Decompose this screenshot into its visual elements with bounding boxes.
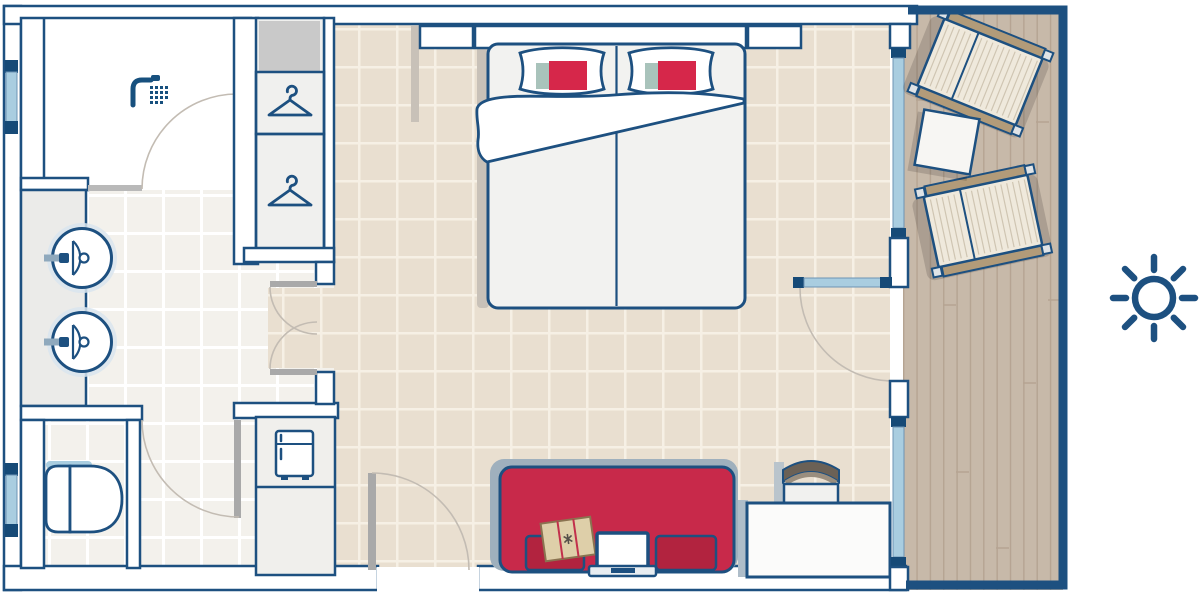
book-icon	[541, 517, 596, 562]
balcony-window-lower	[893, 427, 904, 557]
divider-pillar	[890, 567, 908, 590]
fridge-icon	[276, 431, 313, 480]
window-left-top	[5, 60, 18, 134]
pillow-accent-teal	[645, 63, 659, 89]
side-table	[907, 109, 979, 182]
wardrobe-wall-right	[324, 18, 334, 262]
wardrobe-wall-foot	[244, 248, 334, 262]
balcony-window-upper	[893, 58, 904, 228]
passage-pillar-top	[316, 262, 334, 284]
headboard-shadow	[411, 26, 419, 122]
shower-room	[21, 18, 251, 191]
floor-plan	[0, 0, 1200, 594]
toilet-room-wall-left	[21, 420, 44, 568]
divider-pillar	[890, 381, 908, 417]
desk	[747, 503, 890, 577]
swing-door-leaf-bottom	[270, 369, 317, 375]
passage-pillar-bottom	[316, 372, 334, 404]
toilet-icon	[46, 461, 122, 532]
interior-wall	[234, 18, 258, 264]
sofa-cushion	[656, 536, 716, 570]
window-left-bottom	[5, 463, 18, 537]
nightstand-left	[420, 26, 473, 48]
toilet-room-wall-top	[21, 406, 142, 420]
toilet-room-wall-right	[127, 420, 140, 568]
entrance-threshold	[377, 567, 479, 594]
pillow-accent-teal	[536, 63, 550, 89]
swing-door-leaf-top	[270, 281, 317, 287]
passage-floor	[268, 288, 334, 368]
divider-pillar	[890, 238, 908, 287]
laptop-icon	[589, 533, 656, 576]
balcony-door-leaf	[804, 278, 882, 287]
shower-door-threshold	[88, 185, 142, 191]
entrance-door-leaf	[368, 473, 376, 570]
floor-plan-canvas	[0, 0, 1200, 594]
nightstand-right	[748, 26, 801, 48]
wardrobe-shelf	[259, 21, 320, 71]
pillow-accent-red	[549, 61, 587, 90]
divider-pillar	[890, 24, 910, 48]
toilet-door-leaf	[234, 420, 241, 518]
pillow-accent-red	[658, 61, 696, 90]
sofa	[490, 459, 738, 576]
double-bed	[477, 44, 745, 308]
shower-wall-stub	[21, 178, 88, 190]
shower-room-floor	[21, 18, 251, 190]
